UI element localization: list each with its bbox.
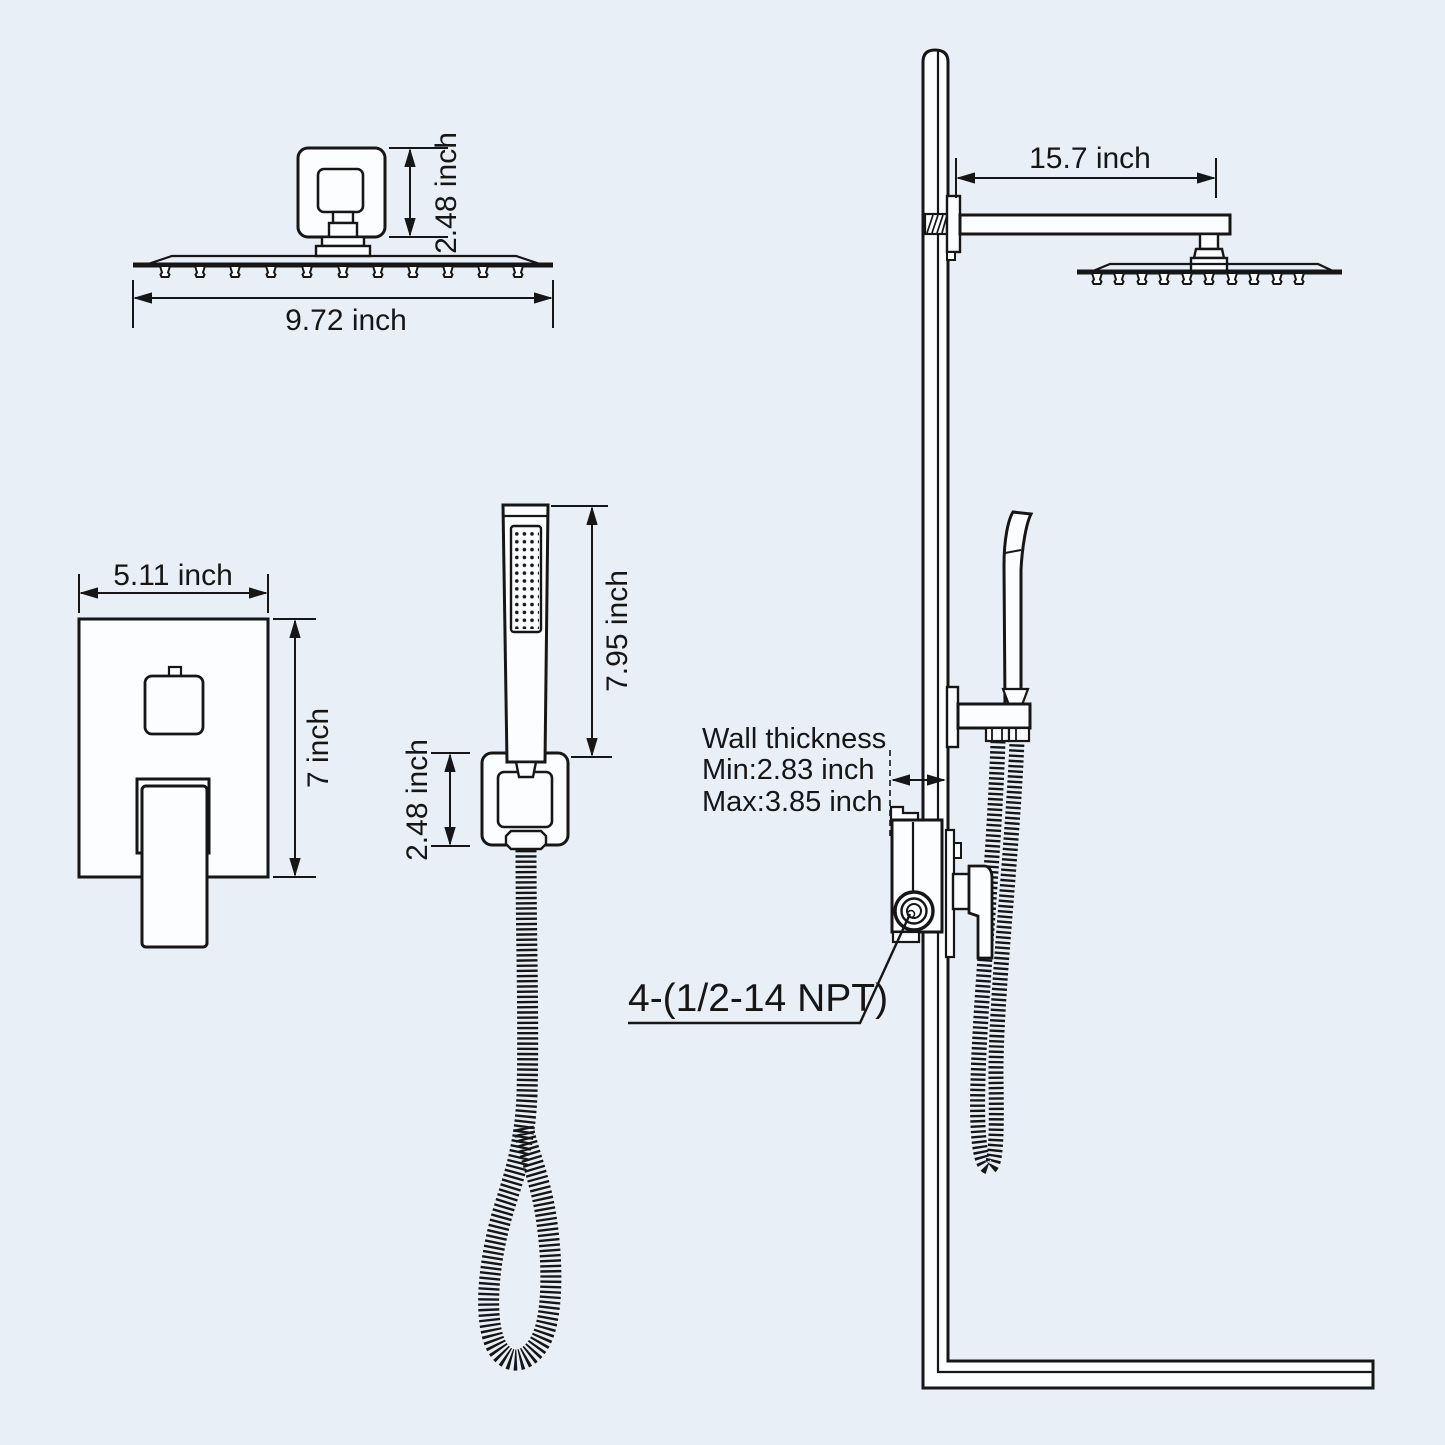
shower-arm bbox=[960, 215, 1230, 234]
dim-head-height: 2.48 inch bbox=[389, 132, 463, 254]
arm-drop-stem bbox=[1200, 234, 1218, 249]
npt-label: 4-(1/2-14 NPT) bbox=[628, 977, 888, 1020]
dim-arm-length: 15.7 inch bbox=[956, 142, 1216, 198]
handle-lever bbox=[142, 786, 207, 947]
diagram-canvas: 2.48 inch 9.72 inch 5.11 inch 7 inch bbox=[0, 0, 1445, 1445]
wall-thickness-title: Wall thickness bbox=[702, 723, 886, 755]
wand-spray-dots bbox=[513, 530, 539, 629]
arm-wall-anchor bbox=[925, 214, 947, 234]
head-stem-upper bbox=[333, 212, 353, 223]
arm-drop-flare bbox=[1194, 249, 1224, 258]
hose-nut bbox=[506, 831, 546, 849]
valve-top-tab bbox=[891, 807, 918, 820]
head-width-label: 9.72 inch bbox=[285, 304, 407, 337]
dim-valve-width: 5.11 inch bbox=[79, 559, 268, 613]
shower-diagram: 2.48 inch 9.72 inch 5.11 inch 7 inch bbox=[0, 0, 1445, 1445]
bracket-height-label: 2.48 inch bbox=[401, 739, 434, 861]
head-stem-lower bbox=[329, 223, 357, 237]
hand-shower-bracket-inner bbox=[498, 772, 552, 827]
wall-thickness-max: Max:3.85 inch bbox=[702, 786, 883, 818]
arm-flange-step bbox=[947, 252, 955, 260]
assembly-handle bbox=[953, 866, 992, 958]
assembly-head-nozzles bbox=[1092, 273, 1304, 284]
mixer-valve-front-view: 5.11 inch 7 inch bbox=[79, 559, 335, 947]
npt-callout: 4-(1/2-14 NPT) bbox=[628, 914, 910, 1023]
head-base-lower bbox=[316, 246, 370, 256]
head-nozzles bbox=[160, 266, 523, 277]
hose-nuts bbox=[986, 728, 1029, 741]
arm-length-label: 15.7 inch bbox=[1029, 142, 1151, 175]
head-base-upper bbox=[322, 237, 364, 246]
arm-flange bbox=[947, 196, 960, 252]
dim-head-width: 9.72 inch bbox=[133, 280, 553, 337]
head-mount-inner-square bbox=[318, 169, 363, 212]
dim-wand-length: 7.95 inch bbox=[551, 506, 634, 757]
wand-taper bbox=[516, 762, 536, 777]
head-height-label: 2.48 inch bbox=[430, 132, 463, 254]
inwall-valve-body bbox=[891, 807, 942, 942]
diverter-button bbox=[145, 676, 203, 734]
assembly-side-view: Wall thickness Min:2.83 inch Max:3.85 in… bbox=[628, 50, 1373, 1388]
hand-shower-hose bbox=[489, 850, 551, 1360]
valve-width-label: 5.11 inch bbox=[113, 559, 233, 592]
wall-thickness-min: Min:2.83 inch bbox=[702, 754, 875, 786]
assembly-bracket-bar bbox=[958, 704, 1030, 728]
dim-valve-height: 7 inch bbox=[273, 619, 335, 877]
assembly-hand-wand bbox=[1004, 512, 1031, 706]
valve-height-label: 7 inch bbox=[302, 708, 335, 788]
assembly-bracket-wallplate bbox=[947, 687, 958, 747]
assembly-trim-tab bbox=[954, 843, 961, 858]
handheld-shower-figure: 7.95 inch 2.48 inch bbox=[401, 505, 634, 1360]
dim-bracket-height: 2.48 inch bbox=[401, 739, 470, 861]
rain-shower-head-side-view: 2.48 inch 9.72 inch bbox=[133, 132, 553, 337]
wand-length-label: 7.95 inch bbox=[601, 570, 634, 692]
